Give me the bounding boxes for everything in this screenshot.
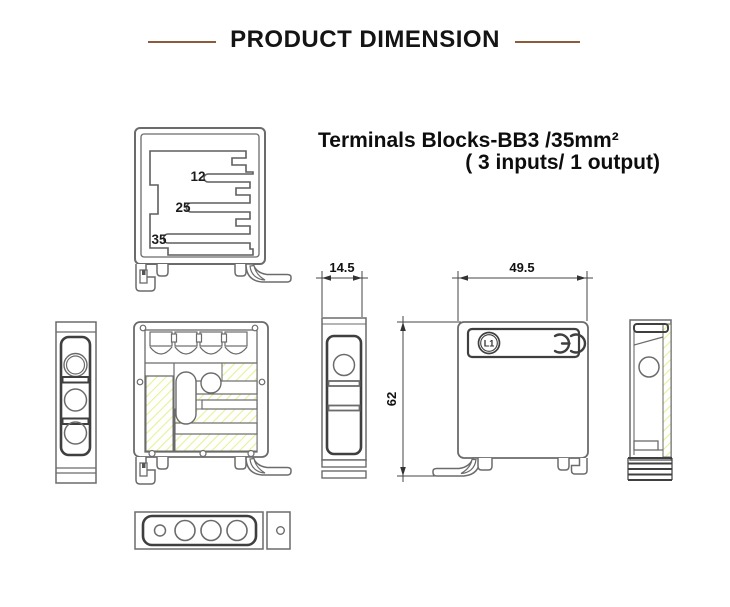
dimension-height: 62 — [384, 316, 461, 482]
front-view — [56, 322, 96, 483]
technical-drawing: 12 25 35 — [0, 0, 730, 607]
dim-side-width-label: 14.5 — [329, 260, 354, 275]
bottom-view — [135, 512, 290, 549]
marking-view: L1 — [433, 322, 588, 476]
l1-label: L1 — [484, 339, 495, 349]
profile-slot-label-25: 25 — [175, 200, 191, 215]
section-side-view — [628, 320, 672, 480]
profile-section-view: 12 25 35 — [135, 128, 291, 291]
side-view — [322, 318, 366, 478]
product-dimension-page: PRODUCT DIMENSION Terminals Blocks-BB3 /… — [0, 0, 730, 607]
cross-section-view — [134, 322, 291, 484]
dimension-side-width: 14.5 — [316, 260, 368, 317]
din-rail-bands — [628, 458, 672, 480]
dim-height-label: 62 — [384, 392, 399, 406]
profile-slot-label-12: 12 — [190, 169, 205, 184]
profile-slot-label-35: 35 — [151, 232, 167, 247]
dimension-front-width: 49.5 — [452, 260, 593, 321]
dim-front-width-label: 49.5 — [509, 260, 534, 275]
